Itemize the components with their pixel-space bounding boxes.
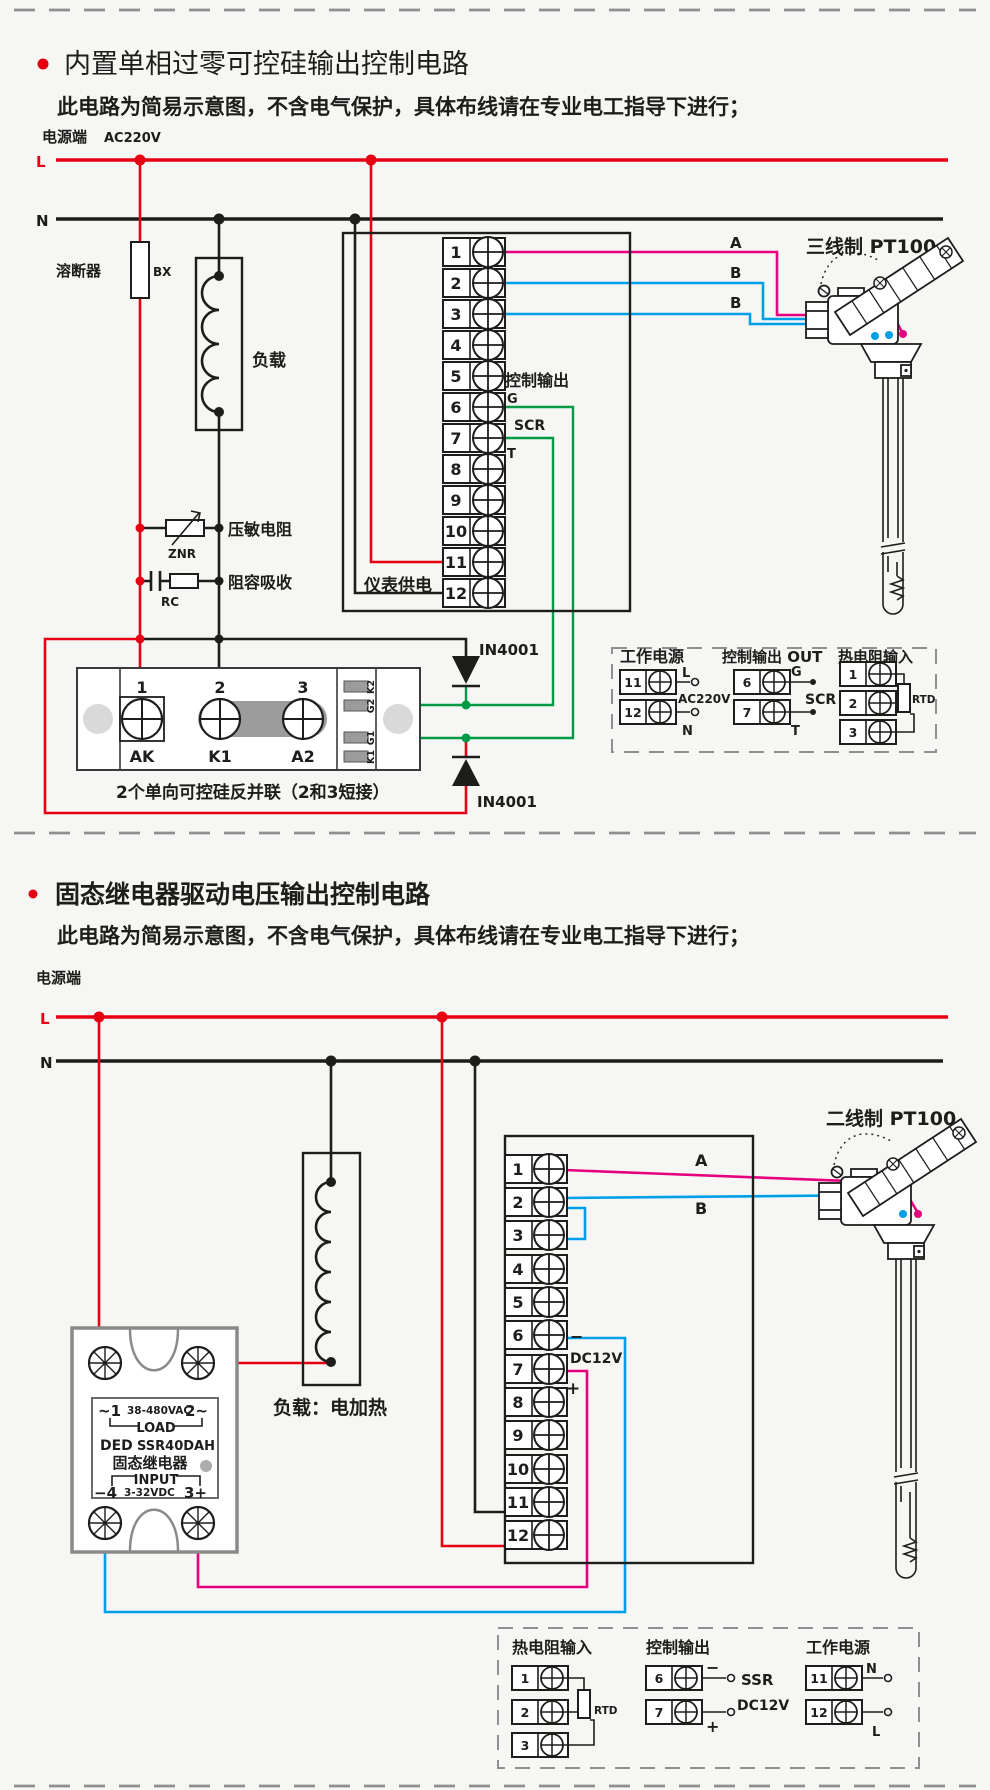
screw-icon [534, 1154, 564, 1184]
terminal-number: 2 [512, 1193, 523, 1212]
line-n-label: N [36, 212, 49, 230]
screw-icon [763, 701, 785, 723]
screw-icon [835, 1701, 857, 1723]
rc-label: 阻容吸收 [228, 573, 292, 592]
line-n-label: N [40, 1054, 53, 1072]
rtd-resistor-icon [578, 1690, 590, 1718]
ssr-led-icon [200, 1460, 212, 1472]
terminal-number: 6 [450, 398, 461, 417]
load-label: 负载 [252, 350, 286, 371]
terminal-number: 7 [450, 429, 461, 448]
load-coil-icon [316, 1182, 331, 1362]
tab-label: G1 [366, 731, 377, 745]
screw-icon [534, 1287, 564, 1317]
gate-label: G [507, 392, 518, 407]
load-1 [196, 258, 242, 430]
fuse-code: BX [153, 265, 172, 279]
legend-g-label: G [791, 665, 802, 680]
varistor-label: 压敏电阻 [228, 520, 292, 539]
ssr-dc-minus: −4 [94, 1484, 117, 1502]
wiring-diagram-page: 内置单相过零可控硅输出控制电路 此电路为简易示意图，不含电气保护，具体布线请在专… [0, 0, 990, 1790]
legend-n-label: N [682, 724, 693, 739]
legend-2: 热电阻输入 1 2 3 RTD 控制输出 6 7 − + SSR DC12V 工… [498, 1628, 919, 1768]
terminal-number: 8 [450, 460, 461, 479]
screw-icon [534, 1420, 564, 1450]
varistor-symbol [166, 511, 204, 545]
legend-terminal-number: 2 [849, 696, 858, 711]
legend-terminal-number: 11 [810, 1671, 827, 1686]
ssr-model: SSR40DAH [137, 1439, 215, 1454]
screw-icon [473, 516, 503, 546]
terminal-number: 12 [445, 584, 467, 603]
screw-icon [473, 423, 503, 453]
dc12v-label: DC12V [570, 1351, 622, 1367]
legend-t-label: T [791, 724, 800, 739]
screw-icon [675, 1701, 697, 1723]
legend-ssr-label: SSR [741, 1671, 774, 1689]
legend-l-label: L [872, 1725, 880, 1740]
screw-icon [473, 361, 503, 391]
module-terminal-label: A2 [291, 747, 315, 766]
wire-a-label: A [695, 1151, 708, 1170]
ssr-ac-voltage: 38-480VAC [127, 1405, 191, 1417]
screw-icon [649, 701, 671, 723]
diagram1-title: 内置单相过零可控硅输出控制电路 [64, 49, 469, 80]
legend-voltage: AC220V [678, 692, 731, 706]
terminal-number: 11 [507, 1493, 529, 1512]
scr-module: 1 2 3 AK K1 A2 K2 G2 G1 K1 [77, 668, 420, 770]
screw-icon [534, 1354, 564, 1384]
sensor-terminal-dot [899, 330, 907, 338]
bullet-icon [38, 59, 49, 70]
screw-icon [473, 454, 503, 484]
plus-label: + [566, 1379, 580, 1399]
module-terminal-number: 3 [297, 678, 308, 697]
legend-terminal-number: 11 [624, 675, 641, 690]
legend-terminal-number: 1 [521, 1671, 530, 1686]
line-l-label: L [40, 1010, 50, 1028]
screw-icon [473, 268, 503, 298]
ssr-brand: DED [100, 1438, 133, 1454]
sensor-terminal-dot [885, 331, 893, 339]
terminal-number: 1 [512, 1160, 523, 1179]
terminal-number: 4 [450, 336, 461, 355]
load-2 [303, 1153, 360, 1385]
ssr-ac1: ~1 [98, 1402, 121, 1420]
screw-icon [89, 1347, 121, 1379]
diode1-label: IN4001 [479, 641, 539, 659]
screw-icon [89, 1507, 121, 1539]
wires-black-1 [140, 219, 473, 719]
terminal-number: 11 [445, 553, 467, 572]
legend-out-title: 控制输出 OUT [722, 648, 823, 666]
terminal-number: 5 [512, 1293, 523, 1312]
legend-terminal-number: 2 [521, 1705, 530, 1720]
rc-symbol [151, 571, 198, 591]
ssr-input-label: INPUT [134, 1473, 179, 1488]
terminal-number: 8 [512, 1393, 523, 1412]
tab-label: K1 [366, 750, 377, 764]
screw-icon [534, 1454, 564, 1484]
scr-label: SCR [514, 418, 545, 434]
screw-icon [182, 1347, 214, 1379]
minus-label: − [570, 1327, 583, 1346]
legend-terminal-number: 6 [655, 1671, 664, 1686]
legend-power-title: 工作电源 [806, 1638, 870, 1657]
screw-icon [534, 1487, 564, 1517]
voltage-label: AC220V [104, 131, 161, 146]
screw-icon [869, 692, 891, 714]
diagram1-subtitle: 此电路为简易示意图，不含电气保护，具体布线请在专业电工指导下进行； [57, 95, 750, 119]
wire-b-label: B [730, 294, 741, 312]
legend-terminal-number: 3 [521, 1738, 530, 1753]
screw-icon [473, 392, 503, 422]
ssr-name: 固态继电器 [112, 1454, 188, 1472]
legend-terminal-number: 7 [743, 705, 752, 720]
terminal-number: 12 [507, 1526, 529, 1545]
legend-terminal-number: 7 [655, 1705, 664, 1720]
legend-terminal-number: 12 [810, 1705, 827, 1720]
ssr-load-label: LOAD [136, 1421, 176, 1436]
fuse-symbol [131, 242, 149, 298]
control-output-label: 控制输出 [505, 371, 569, 390]
terminal-number: 7 [512, 1360, 523, 1379]
terminal-number: 1 [450, 243, 461, 262]
diagram2: 固态继电器驱动电压输出控制电路 此电路为简易示意图，不含电气保护，具体布线请在专… [29, 880, 977, 1768]
legend-1: 工作电源 11 12 L AC220V N 控制输出 OUT 6 7 G SCR… [612, 647, 936, 752]
sensor-terminal-dot [914, 1210, 922, 1218]
terminal-number: 6 [512, 1326, 523, 1345]
screw-icon [763, 671, 785, 693]
terminal-number: 4 [512, 1260, 523, 1279]
screw-icon [534, 1187, 564, 1217]
meter-power-label: 仪表供电 [363, 575, 432, 596]
varistor-code: ZNR [168, 547, 196, 561]
legend-rtd-title: 热电阻输入 [512, 1638, 592, 1657]
power-terminal-label: 电源端 [42, 128, 87, 146]
ssr-dc-plus: 3+ [184, 1484, 207, 1502]
legend-terminal-number: 1 [849, 667, 858, 682]
legend-l-label: L [682, 666, 690, 681]
screw-icon [541, 1667, 563, 1689]
screw-icon [182, 1507, 214, 1539]
diagram2-subtitle: 此电路为简易示意图，不含电气保护，具体布线请在专业电工指导下进行； [57, 924, 750, 948]
screw-icon [473, 237, 503, 267]
screw-icon [283, 699, 323, 739]
screw-icon [869, 721, 891, 743]
screw-icon [675, 1667, 697, 1689]
junction-dots-2 [94, 1012, 481, 1067]
terminal-number: 3 [512, 1226, 523, 1245]
ssr-ac2: 2~ [185, 1402, 208, 1420]
ssr-module: ~1 38-480VAC 2~ LOAD DED SSR40DAH 固态继电器 … [72, 1328, 237, 1552]
legend-terminal-number: 12 [624, 705, 641, 720]
sensor-terminal-dot [871, 332, 879, 340]
legend-out-title: 控制输出 [646, 1638, 710, 1657]
diagram-svg: 内置单相过零可控硅输出控制电路 此电路为简易示意图，不含电气保护，具体布线请在专… [0, 0, 990, 1790]
screw-icon [200, 699, 240, 739]
module-terminal-number: 2 [214, 678, 225, 697]
screw-icon [534, 1387, 564, 1417]
bullet-icon [29, 890, 38, 899]
t-label: T [507, 447, 516, 462]
rc-code: RC [161, 595, 179, 609]
sensor-terminal-dot [899, 1210, 907, 1218]
module-terminal-label: AK [130, 747, 155, 766]
legend-terminal-number: 6 [743, 675, 752, 690]
fuse-label: 溶断器 [56, 262, 102, 280]
screw-icon [534, 1220, 564, 1250]
legend-terminal-number: 3 [849, 725, 858, 740]
rtd-resistor-icon [898, 684, 910, 712]
screw-icon [122, 699, 162, 739]
diagram2-title: 固态继电器驱动电压输出控制电路 [55, 880, 431, 909]
screw-icon [473, 547, 503, 577]
legend-scr-label: SCR [805, 692, 836, 708]
sensor-type-label: 二线制 PT100 [826, 1107, 956, 1130]
screw-icon [534, 1254, 564, 1284]
tab-label: G2 [366, 699, 377, 713]
legend-rtd-dev: RTD [912, 694, 936, 706]
load-label: 负载：电加热 [273, 1396, 387, 1419]
screw-icon [473, 330, 503, 360]
screw-icon [473, 485, 503, 515]
screw-icon [534, 1320, 564, 1350]
terminal-number: 9 [512, 1426, 523, 1445]
rtd-element-icon [891, 576, 903, 600]
power-terminal-label: 电源端 [36, 969, 81, 987]
terminal-number: 5 [450, 367, 461, 386]
terminal-number: 10 [445, 522, 467, 541]
diode1-icon [452, 656, 480, 686]
rtd-element-icon [904, 1538, 916, 1562]
terminal-number: 9 [450, 491, 461, 510]
wire-b-label: B [730, 264, 741, 282]
sensor-type-label: 三线制 PT100 [806, 235, 936, 258]
screw-icon [835, 1667, 857, 1689]
junction-dots-1 [135, 155, 471, 743]
terminal-number: 3 [450, 305, 461, 324]
screw-icon [649, 671, 671, 693]
pt100-probe-icon [894, 1259, 918, 1578]
tab-label: K2 [366, 680, 377, 694]
wire-a-label: A [730, 234, 742, 252]
legend-plus: + [706, 1717, 719, 1736]
legend-rtd-dev: RTD [594, 1705, 618, 1717]
legend-minus: − [706, 1658, 719, 1677]
terminal-number: 10 [507, 1460, 529, 1479]
pt100-head-icon [806, 238, 963, 378]
diode2-label: IN4001 [477, 793, 537, 811]
module-terminal-label: K1 [208, 747, 232, 766]
screw-icon [541, 1701, 563, 1723]
ssr-dc-voltage: 3-32VDC [124, 1487, 175, 1499]
load-coil-icon [202, 276, 219, 412]
screw-icon [534, 1520, 564, 1550]
screw-icon [869, 663, 891, 685]
legend-dc12v: DC12V [737, 1698, 789, 1714]
diode2-icon [452, 757, 480, 786]
terminal-number: 2 [450, 274, 461, 293]
terminal-strip-1: 1 2 3 4 5 6 7 8 9 10 11 12 [443, 237, 505, 608]
line-l-label: L [36, 153, 46, 171]
pt100-head-icon [819, 1119, 976, 1259]
module-terminal-number: 1 [136, 678, 147, 697]
terminal-strip-2: 1 2 3 4 5 6 7 8 9 10 11 12 [505, 1154, 567, 1550]
screw-icon [473, 299, 503, 329]
legend-power-title: 工作电源 [620, 647, 684, 666]
module-caption: 2个单向可控硅反并联（2和3短接） [116, 782, 390, 803]
screw-icon [473, 578, 503, 608]
wire-b-label: B [695, 1199, 707, 1218]
screw-icon [541, 1734, 563, 1756]
legend-n-label: N [866, 1662, 877, 1677]
diagram1: 内置单相过零可控硅输出控制电路 此电路为简易示意图，不含电气保护，具体布线请在专… [36, 49, 963, 813]
